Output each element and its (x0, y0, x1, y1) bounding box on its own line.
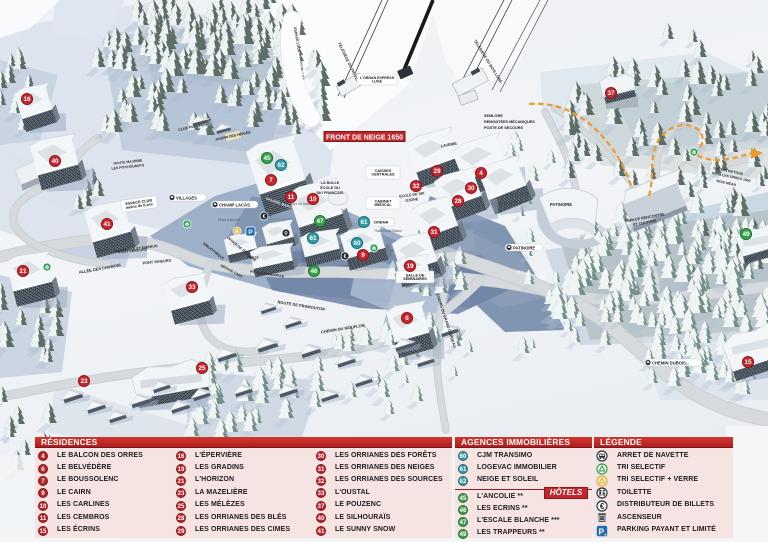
svg-text:15: 15 (744, 359, 752, 366)
svg-text:4: 4 (479, 170, 483, 177)
svg-text:21: 21 (19, 268, 27, 275)
svg-text:49: 49 (742, 231, 750, 238)
svg-text:€: € (344, 254, 347, 260)
svg-text:REMONTÉES MÉCANIQUES: REMONTÉES MÉCANIQUES (484, 119, 535, 124)
svg-text:Place École Mistral: Place École Mistral (374, 228, 401, 233)
svg-text:PATINOIRE: PATINOIRE (513, 246, 535, 251)
svg-text:♻: ♻ (372, 246, 377, 252)
svg-text:POSTE: POSTE (247, 256, 259, 260)
svg-text:LUGE: LUGE (372, 80, 383, 84)
svg-text:9: 9 (361, 252, 365, 259)
svg-text:€: € (263, 214, 266, 220)
svg-text:CENTRALES: CENTRALES (371, 173, 395, 177)
svg-text:6: 6 (405, 315, 409, 322)
svg-text:€: € (599, 502, 604, 511)
svg-text:CHEMIN DUBOIS...: CHEMIN DUBOIS... (652, 361, 689, 366)
svg-text:P: P (248, 229, 253, 236)
svg-text:⚲: ⚲ (284, 231, 288, 237)
svg-text:47: 47 (316, 218, 324, 225)
svg-text:28: 28 (454, 198, 462, 205)
svg-text:45: 45 (263, 155, 271, 162)
svg-text:16: 16 (23, 96, 31, 103)
svg-text:CINÉMA: CINÉMA (374, 219, 389, 224)
svg-text:♻: ♻ (185, 222, 190, 228)
svg-text:♻: ♻ (692, 150, 697, 156)
svg-text:ÉCOLE DU: ÉCOLE DU (320, 185, 340, 190)
svg-text:25: 25 (198, 365, 206, 372)
svg-text:POSTE DE SECOURS: POSTE DE SECOURS (484, 126, 523, 130)
svg-text:FRONT DE NEIGE 1650: FRONT DE NEIGE 1650 (326, 134, 403, 141)
svg-text:SKI FRANÇAIS: SKI FRANÇAIS (316, 191, 343, 195)
svg-text:40: 40 (51, 158, 59, 165)
svg-text:Place d'accueil: Place d'accueil (218, 218, 239, 222)
svg-text:61: 61 (360, 219, 368, 226)
svg-text:32: 32 (412, 183, 420, 190)
svg-text:MÉDICAL: MÉDICAL (374, 202, 392, 207)
svg-text:33: 33 (188, 284, 196, 291)
svg-text:62: 62 (277, 162, 285, 169)
svg-text:19: 19 (406, 263, 414, 270)
svg-text:VILLAGES: VILLAGES (176, 196, 197, 201)
svg-text:23: 23 (80, 378, 88, 385)
svg-text:SEMLORE: SEMLORE (484, 114, 503, 118)
svg-text:46: 46 (310, 268, 318, 275)
svg-text:30: 30 (467, 185, 475, 192)
svg-text:61: 61 (309, 235, 317, 242)
svg-text:31: 31 (430, 229, 438, 236)
svg-text:10: 10 (309, 196, 317, 203)
svg-text:41: 41 (103, 221, 111, 228)
svg-text:SÉMINAIRES: SÉMINAIRES (403, 276, 427, 281)
svg-text:♻: ♻ (45, 265, 50, 271)
svg-text:CHAMP LACAS: CHAMP LACAS (219, 203, 250, 208)
svg-text:PATINOIRE: PATINOIRE (550, 202, 572, 207)
svg-text:♻: ♻ (235, 229, 240, 235)
svg-text:29: 29 (433, 168, 441, 175)
svg-text:7: 7 (269, 177, 273, 184)
svg-text:11: 11 (288, 194, 295, 201)
svg-text:37: 37 (607, 90, 615, 97)
svg-text:LA BULLE: LA BULLE (321, 181, 340, 185)
svg-text:60: 60 (353, 240, 361, 247)
svg-text:P: P (598, 526, 604, 536)
